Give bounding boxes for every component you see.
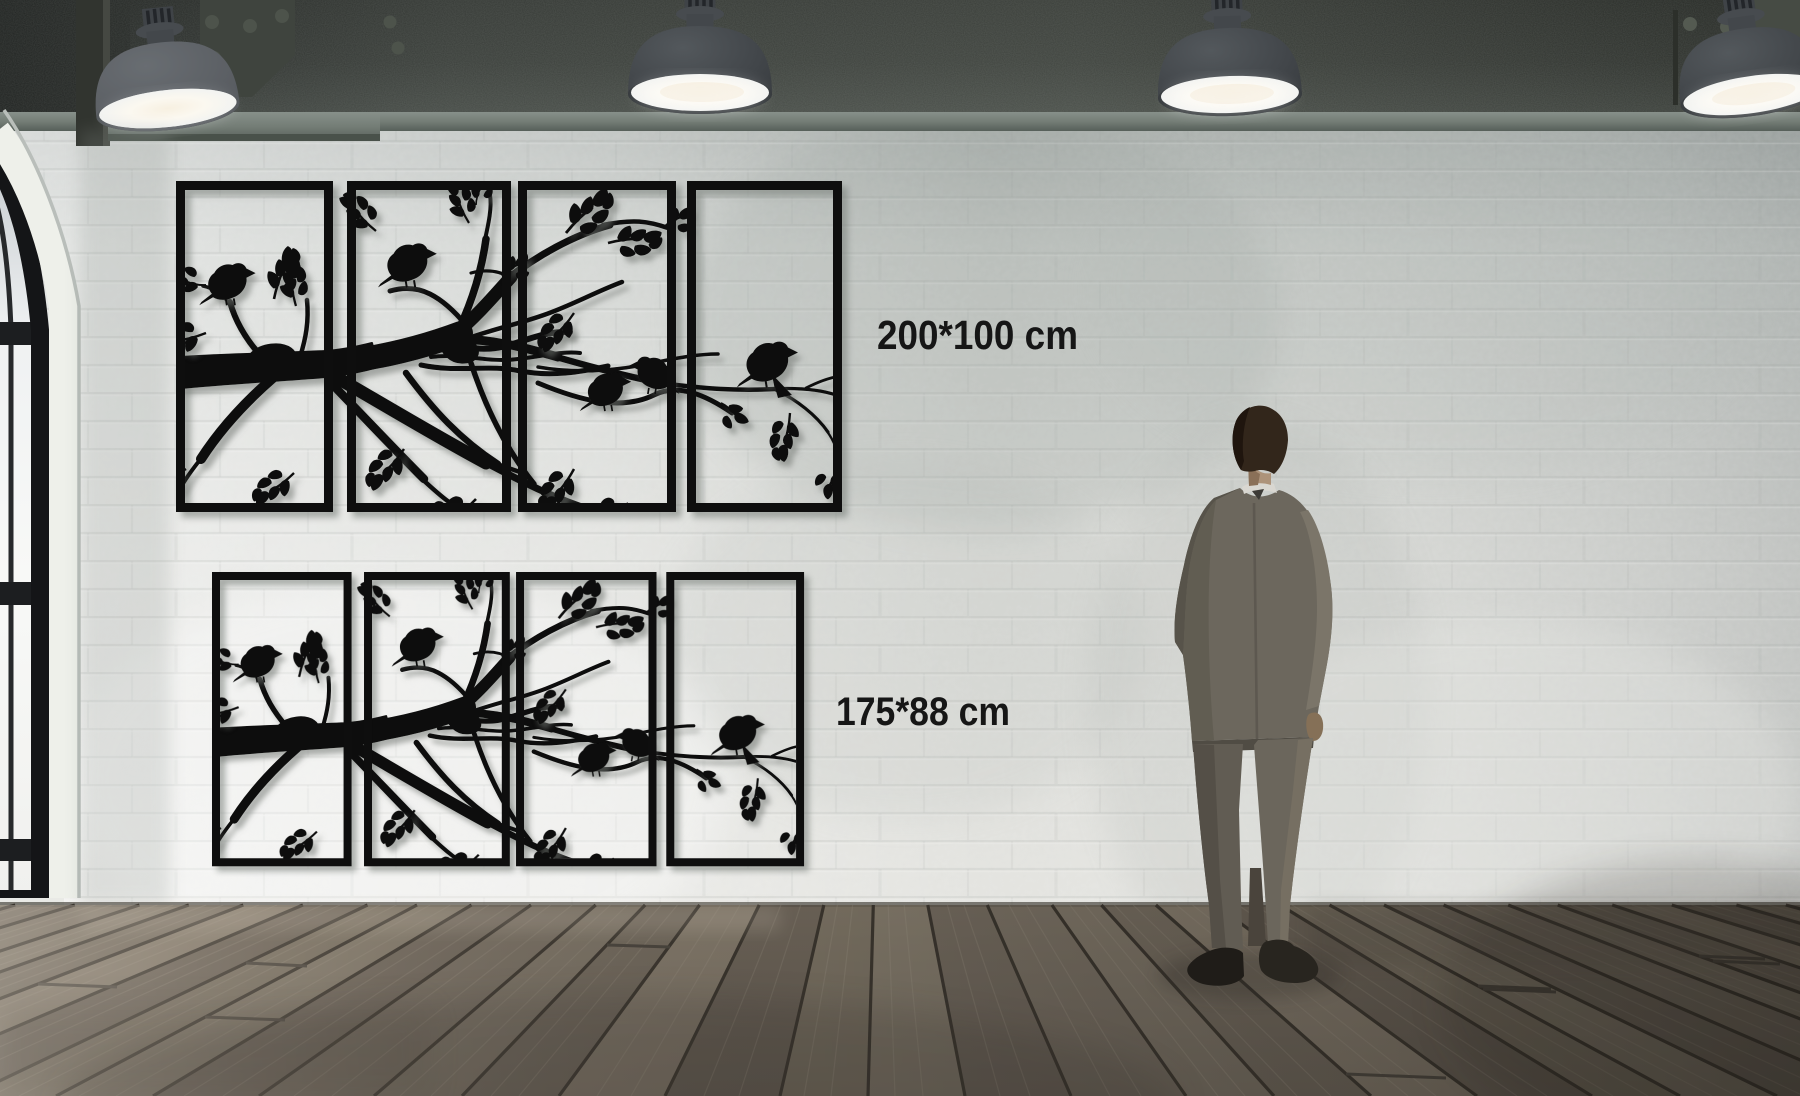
svg-text:200*100 cm: 200*100 cm [877,312,1078,358]
svg-text:175*88 cm: 175*88 cm [836,690,1010,734]
